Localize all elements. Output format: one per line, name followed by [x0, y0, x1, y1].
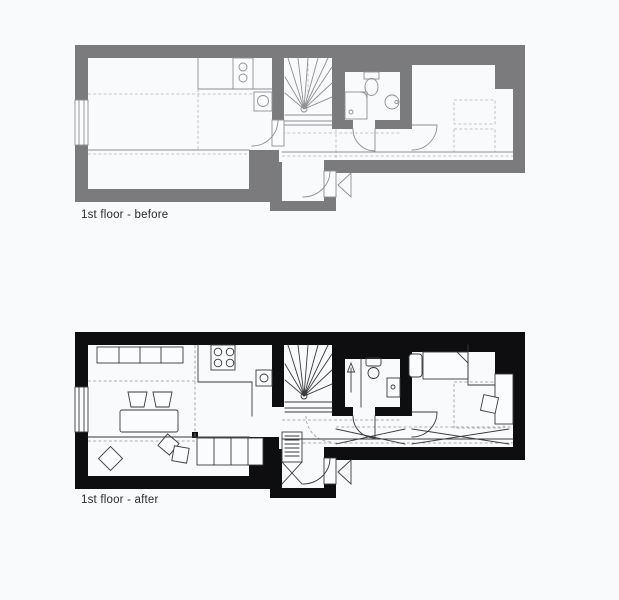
chair: [128, 392, 147, 407]
bed-outline-dashed: [454, 100, 495, 124]
dining-table: [120, 410, 178, 432]
desk-chair: [481, 395, 499, 414]
walls-before: [75, 45, 525, 211]
floor-cushion: [98, 446, 122, 470]
toilet-bowl: [368, 368, 379, 379]
window: [75, 387, 88, 432]
floor-plan-sheet: 1st floor - before 1st floor - after: [0, 0, 619, 600]
floor-cushion: [172, 446, 189, 463]
kitchen-sink: [256, 370, 272, 386]
bedroom-door-arc: [412, 412, 437, 437]
linework-before: [79, 58, 513, 197]
plans-drawing: [0, 0, 619, 600]
shower-tray: [345, 92, 367, 119]
winder-staircase: [285, 345, 332, 412]
winder-staircase: [285, 58, 332, 125]
basin-tap: [395, 100, 398, 103]
white-fixtures-after: [75, 345, 513, 484]
pillow: [409, 354, 422, 377]
washbasin: [387, 378, 400, 397]
bathroom-after: [348, 358, 401, 438]
toilet-tank: [366, 358, 381, 366]
sideboard-units: [197, 438, 263, 465]
kitchen-sink: [254, 92, 272, 111]
reference-lines-before: [88, 58, 513, 160]
white-fixtures-before: [75, 58, 336, 197]
wardrobe-cross: [282, 462, 302, 484]
entrance-direction-triangle: [338, 173, 351, 197]
round-washbasin: [385, 95, 399, 109]
label-before: 1st floor - before: [81, 209, 168, 221]
bathroom-before: [345, 72, 399, 151]
hall-wardrobe: [282, 432, 302, 462]
bed-outline-dashed: [454, 129, 495, 152]
shower-drain: [349, 110, 353, 114]
label-after: 1st floor - after: [81, 494, 159, 506]
bedroom-door-arc: [412, 125, 437, 150]
entrance-direction-triangle: [338, 460, 351, 484]
bath-door-arc: [353, 129, 375, 151]
window: [75, 100, 88, 145]
chair: [153, 392, 172, 407]
sliding-wardrobe-crosses: [336, 429, 509, 444]
floor-plan-after: [75, 332, 525, 498]
basin-drain: [391, 385, 395, 389]
floor-plan-before: [75, 45, 525, 211]
toilet-tank: [364, 72, 379, 79]
